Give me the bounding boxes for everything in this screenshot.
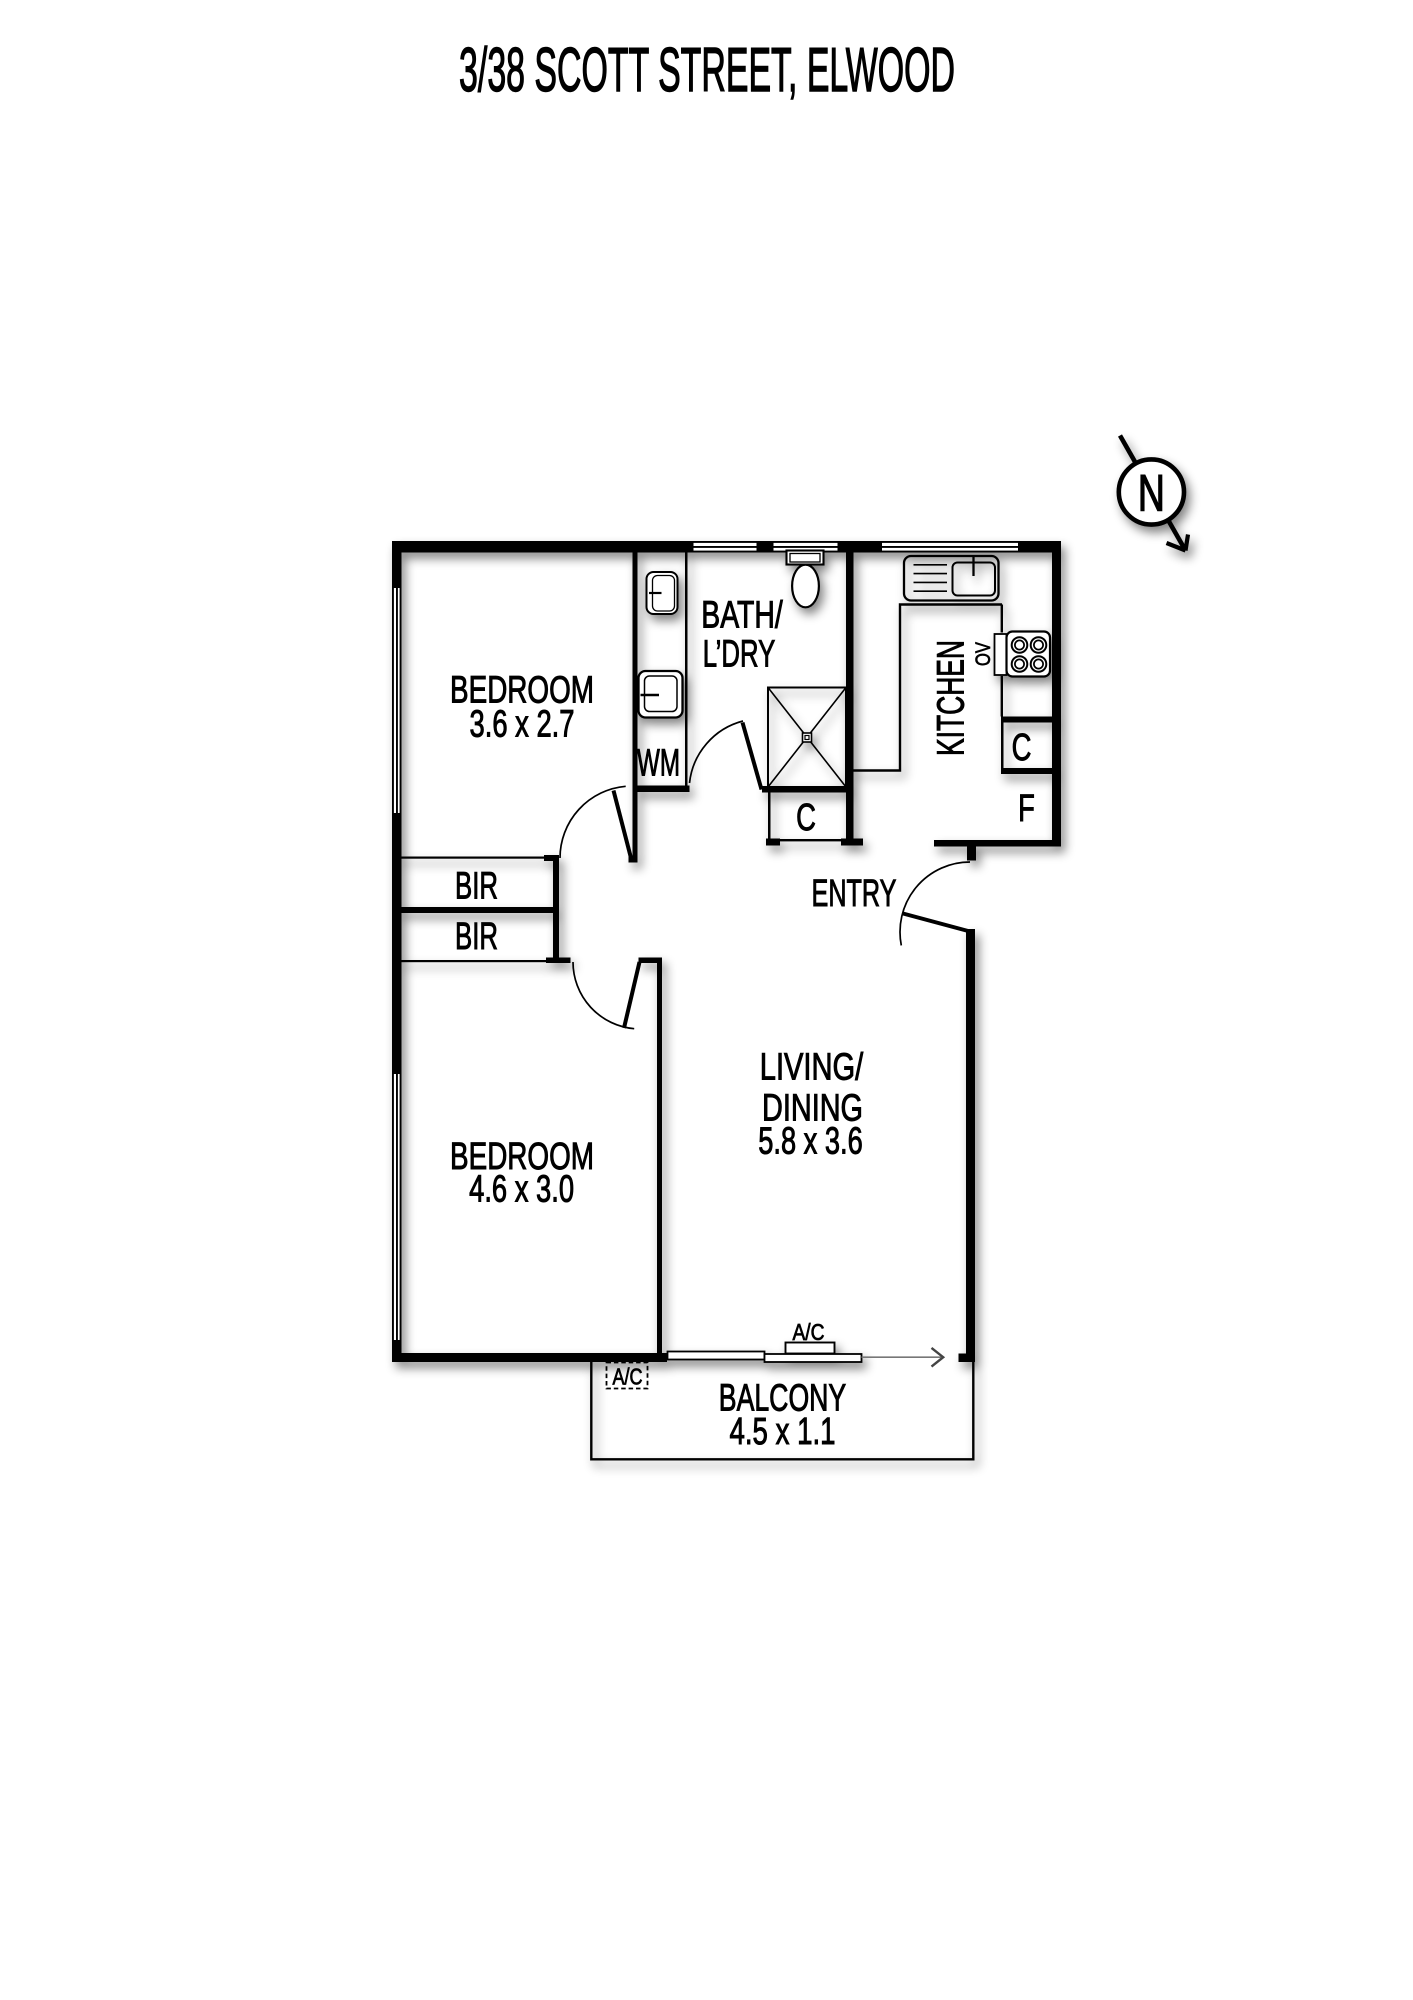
svg-text:A/C: A/C <box>613 1364 643 1390</box>
svg-text:BATH/: BATH/ <box>701 595 783 637</box>
svg-text:BIR: BIR <box>455 915 498 957</box>
svg-text:L’DRY: L’DRY <box>703 633 775 675</box>
svg-text:WM: WM <box>637 741 680 784</box>
svg-text:C: C <box>1012 727 1032 769</box>
svg-text:5.8 x 3.6: 5.8 x 3.6 <box>758 1120 862 1163</box>
svg-text:OV: OV <box>972 642 996 666</box>
svg-text:3/38 SCOTT STREET, ELWOOD: 3/38 SCOTT STREET, ELWOOD <box>459 35 955 104</box>
svg-text:F: F <box>1018 788 1035 830</box>
svg-text:N: N <box>1138 466 1165 522</box>
svg-text:C: C <box>796 797 816 839</box>
svg-text:KITCHEN: KITCHEN <box>929 640 972 756</box>
svg-text:BIR: BIR <box>455 864 498 906</box>
svg-text:4.6 x 3.0: 4.6 x 3.0 <box>469 1168 574 1210</box>
svg-text:A/C: A/C <box>793 1320 825 1345</box>
svg-text:ENTRY: ENTRY <box>812 872 897 914</box>
svg-text:4.5 x 1.1: 4.5 x 1.1 <box>730 1411 836 1453</box>
svg-text:LIVING/: LIVING/ <box>760 1046 864 1089</box>
svg-text:3.6 x 2.7: 3.6 x 2.7 <box>470 703 575 745</box>
